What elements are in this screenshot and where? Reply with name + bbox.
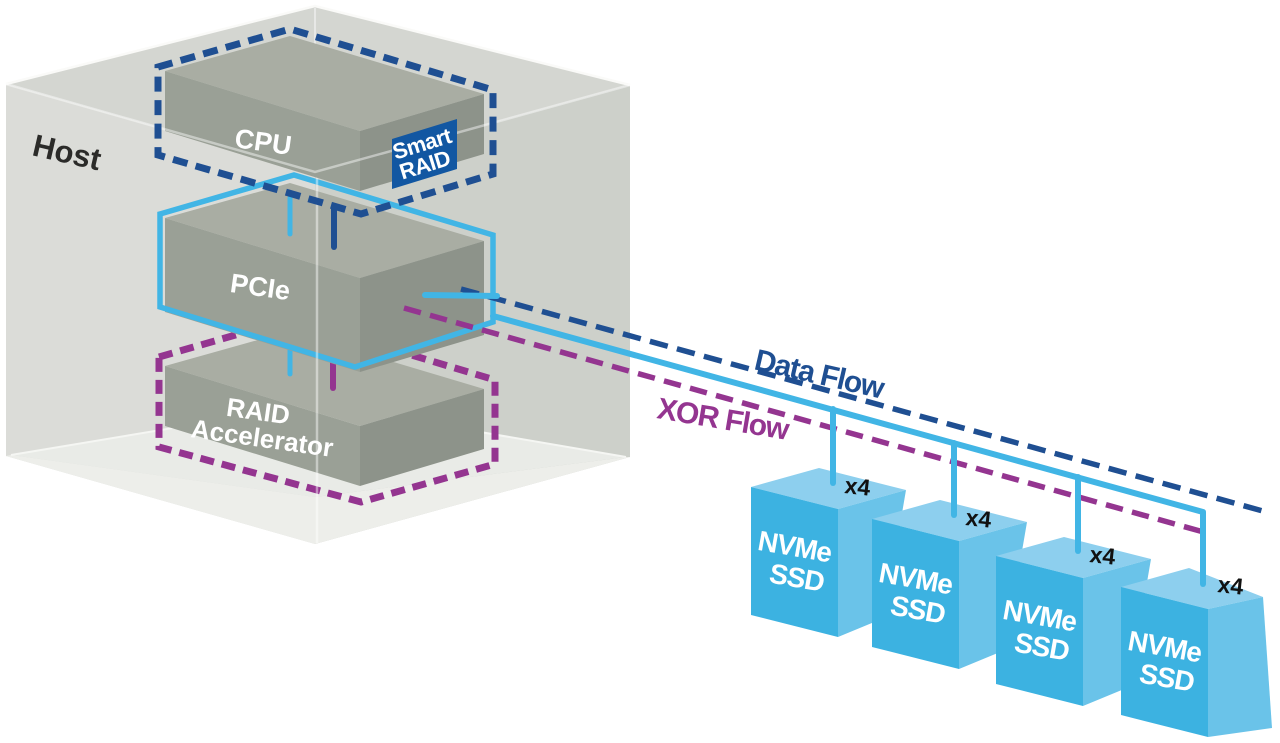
svg-text:x4: x4	[843, 472, 871, 501]
svg-text:x4: x4	[964, 504, 992, 533]
svg-text:x4: x4	[1216, 571, 1244, 600]
svg-text:x4: x4	[1088, 541, 1116, 570]
